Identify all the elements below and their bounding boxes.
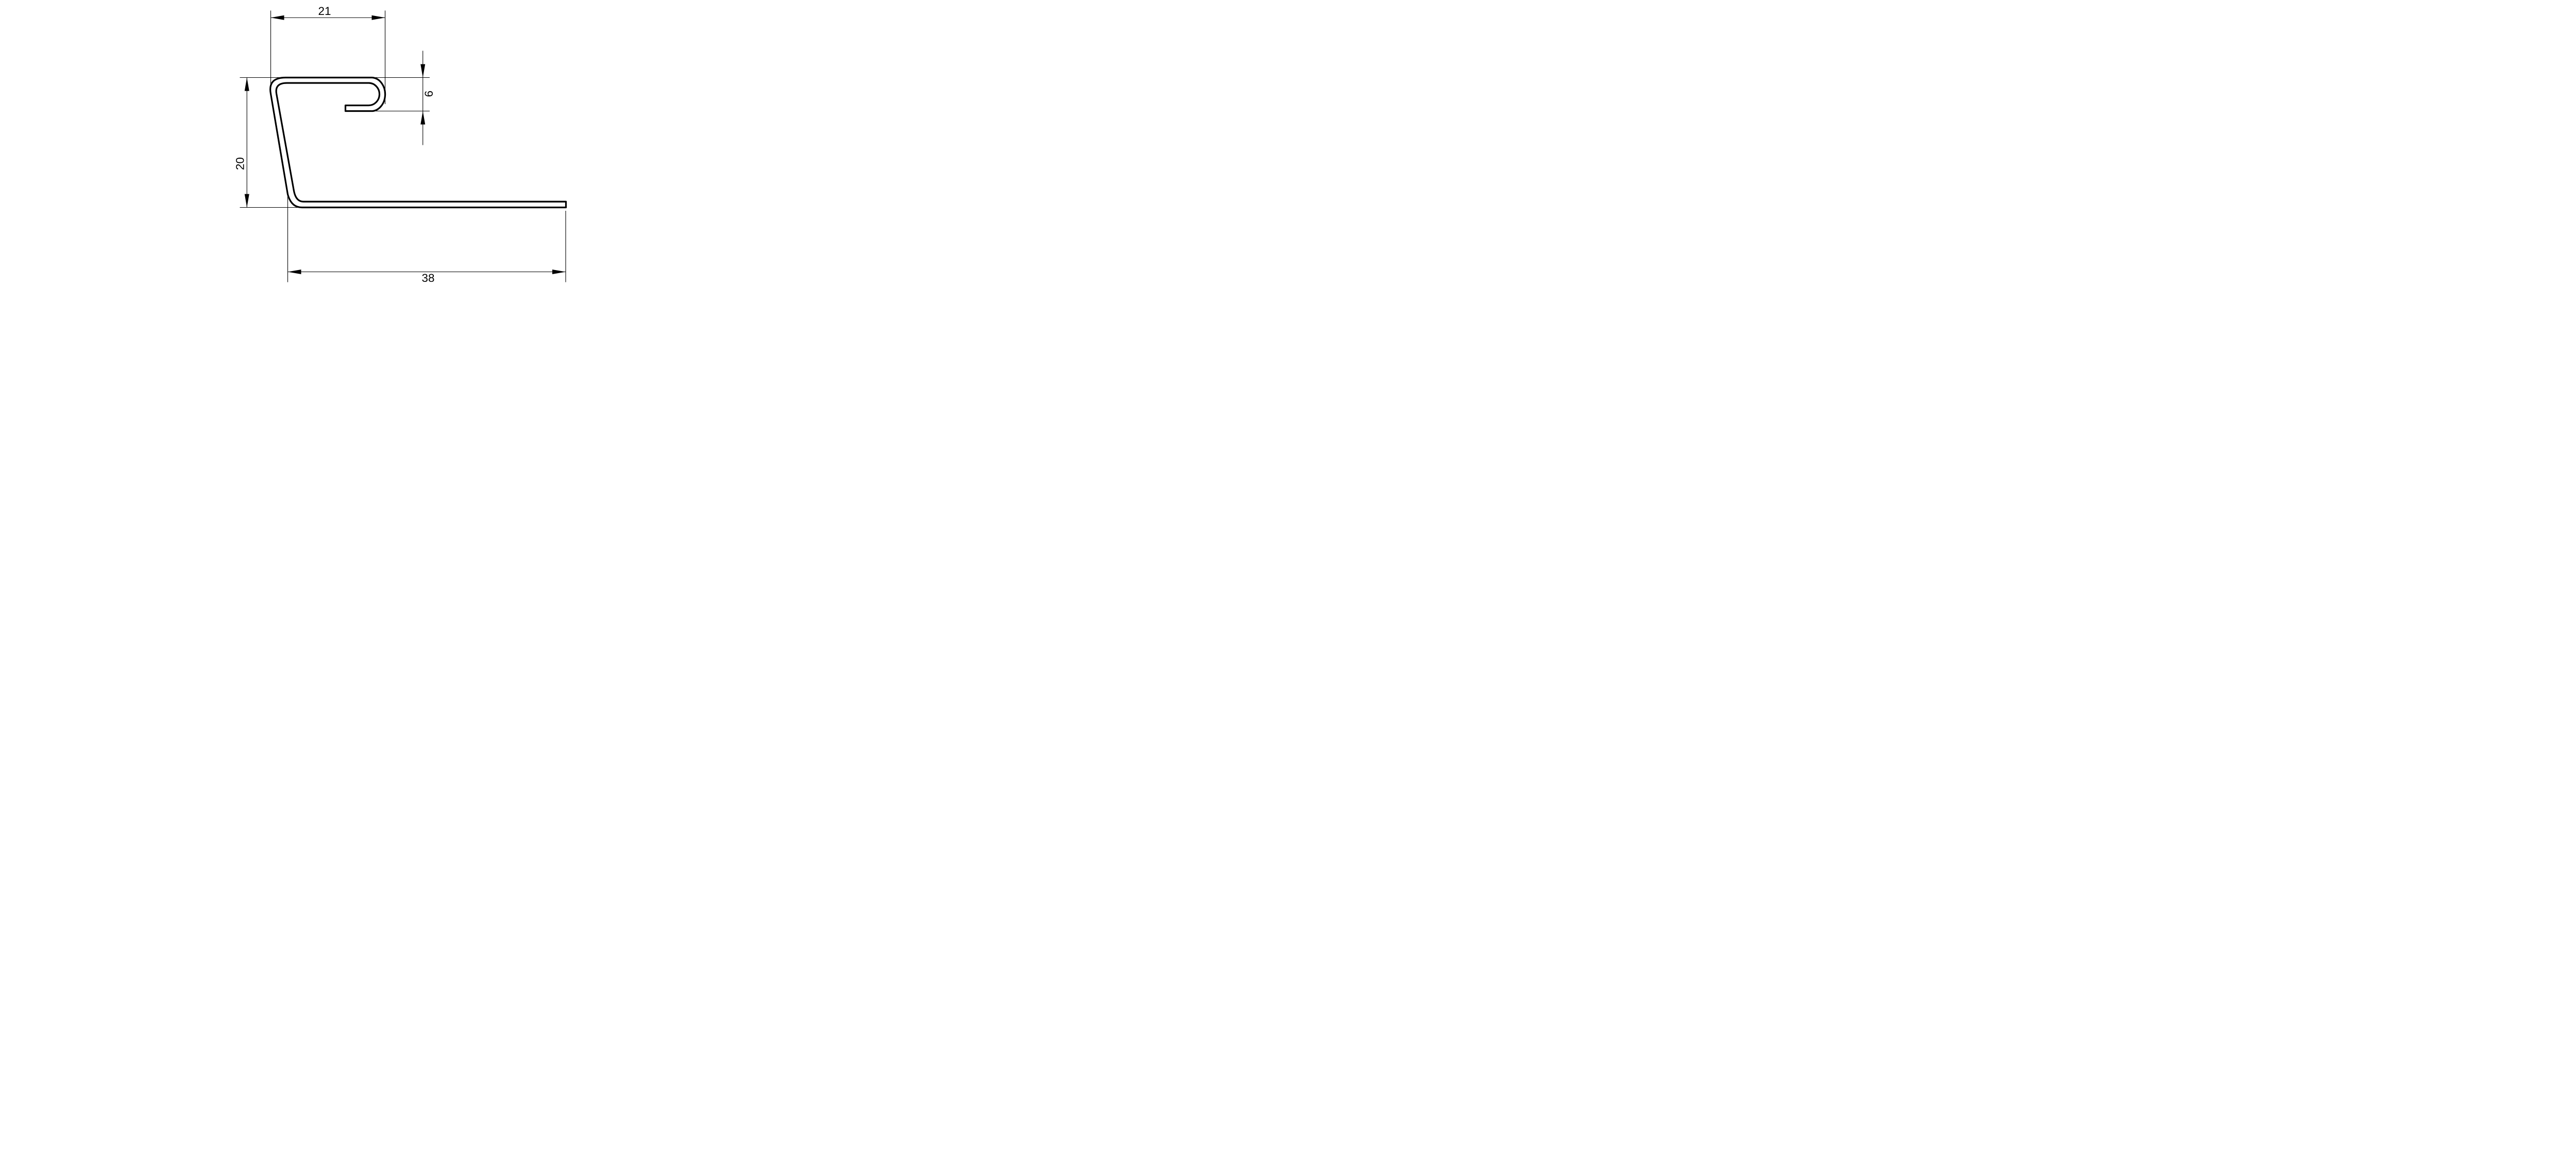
- arrowhead-6-top-icon: [420, 64, 425, 78]
- arrowheads-group: [245, 15, 566, 274]
- profile-outline: [270, 78, 566, 208]
- dimension-label-top-width: 21: [318, 5, 331, 18]
- arrowhead-20-bottom-icon: [245, 194, 249, 208]
- dimension-label-base-width: 38: [421, 272, 434, 284]
- dimension-label-left-height: 20: [234, 157, 247, 170]
- profile-drawing-svg: 21 20 6 38: [0, 0, 805, 290]
- arrowhead-21-left-icon: [271, 15, 284, 20]
- arrowhead-38-right-icon: [552, 270, 566, 274]
- arrowhead-20-top-icon: [245, 78, 249, 91]
- dimension-lines-group: [240, 11, 566, 282]
- arrowhead-38-left-icon: [288, 270, 301, 274]
- dimension-label-hook-gap: 6: [422, 91, 435, 97]
- technical-drawing-canvas: 21 20 6 38: [0, 0, 805, 290]
- arrowhead-21-right-icon: [372, 15, 385, 20]
- arrowhead-6-bottom-icon: [420, 111, 425, 125]
